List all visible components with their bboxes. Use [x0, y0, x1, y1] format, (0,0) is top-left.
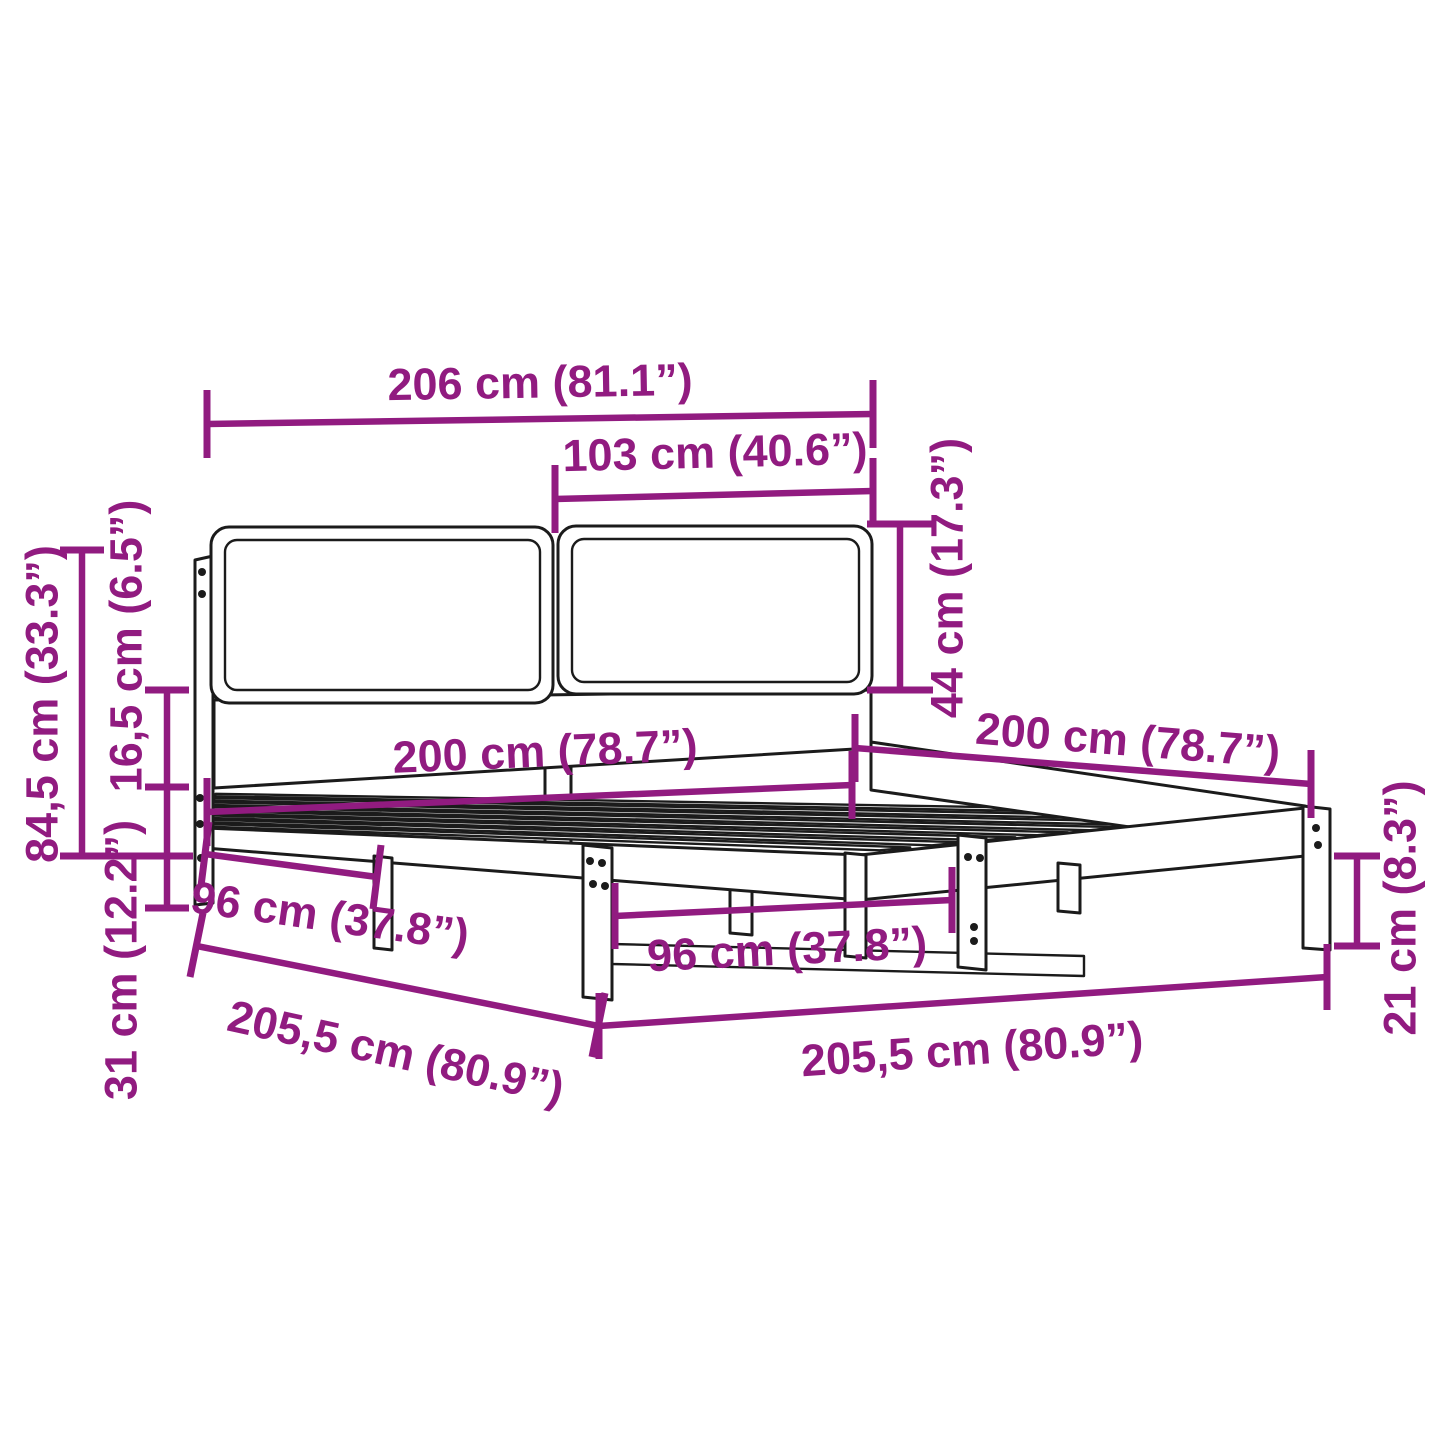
dimension-label: 84,5 cm (33.3”): [17, 545, 68, 863]
dimension-label: 103 cm (40.6”): [562, 423, 868, 481]
dimension-label: 44 cm (17.3”): [922, 438, 973, 718]
dimension-frame-base-height: 31 cm (12.2”): [96, 787, 190, 1100]
dimension-label: 206 cm (81.1”): [387, 354, 693, 410]
dimension-label: 31 cm (12.2”): [96, 820, 147, 1100]
headboard-left-panel: [211, 527, 553, 703]
dimension-leg-height: 21 cm (8.3”): [1334, 780, 1426, 1035]
dimension-label: 205,5 cm (80.9”): [799, 1012, 1144, 1087]
dimension-headboard-panel-height: 44 cm (17.3”): [867, 438, 973, 718]
dimension-label: 21 cm (8.3”): [1375, 780, 1426, 1035]
right-leg-2: [1058, 863, 1080, 913]
diagram-page: 206 cm (81.1”) 103 cm (40.6”) 44 cm (17.…: [0, 0, 1445, 1445]
dimension-headboard-clearance: 16,5 cm (6.5”): [101, 500, 190, 793]
dimension-label: 96 cm (37.8”): [188, 871, 473, 960]
bed-frame-dimension-diagram: 206 cm (81.1”) 103 cm (40.6”) 44 cm (17.…: [0, 0, 1445, 1445]
headboard-right-panel: [558, 526, 872, 694]
dimension-headboard-panel-width: 103 cm (40.6”): [555, 423, 873, 533]
dimension-label: 16,5 cm (6.5”): [101, 500, 152, 793]
front-leg-3: [583, 845, 612, 1000]
